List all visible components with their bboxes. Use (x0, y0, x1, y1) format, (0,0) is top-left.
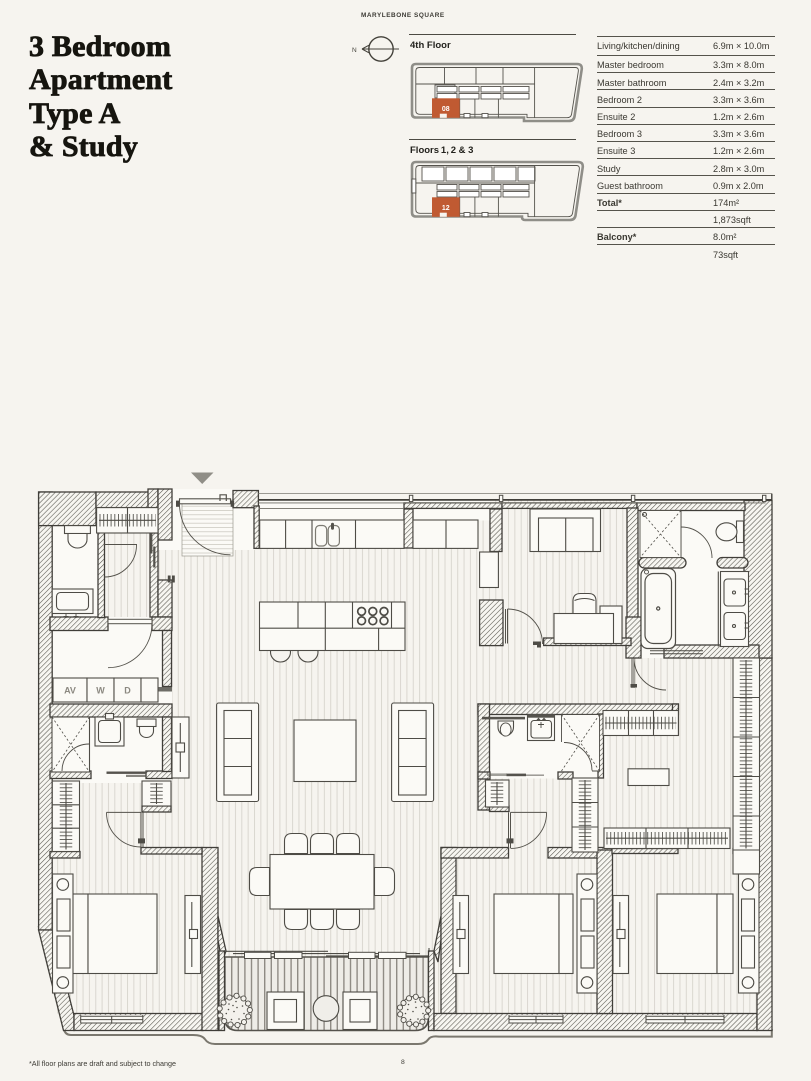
svg-text:W: W (96, 686, 105, 696)
svg-text:AV: AV (64, 686, 76, 696)
svg-text:D: D (124, 686, 131, 696)
